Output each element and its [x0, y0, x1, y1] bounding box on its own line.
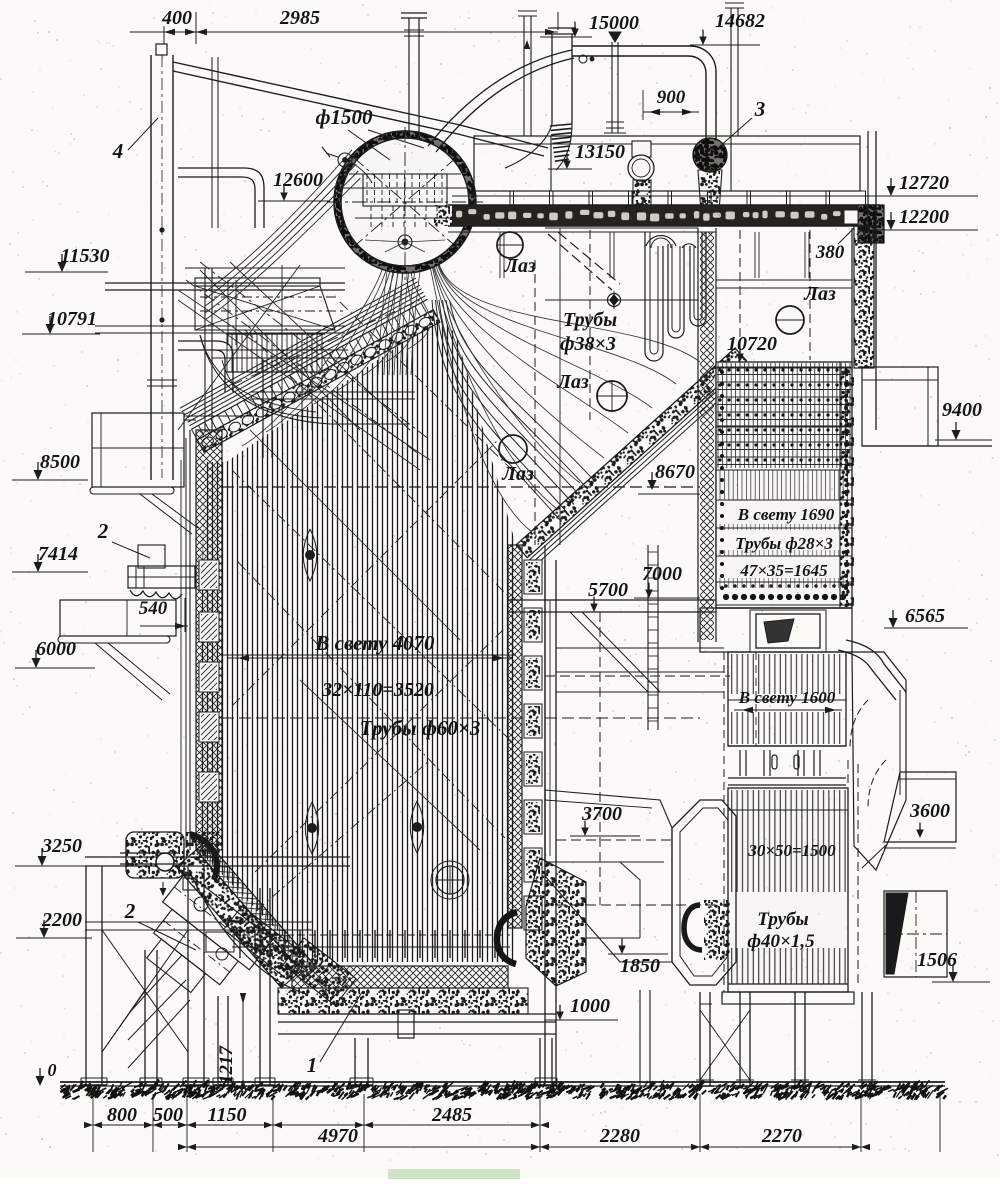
svg-text:1: 1 [307, 1053, 318, 1077]
svg-text:3600: 3600 [909, 800, 950, 822]
svg-text:2270: 2270 [761, 1125, 802, 1147]
svg-text:12600: 12600 [273, 169, 323, 191]
svg-text:13150: 13150 [575, 141, 625, 163]
svg-text:7000: 7000 [642, 563, 682, 585]
svg-text:В свету 1690: В свету 1690 [737, 505, 835, 524]
svg-text:2280: 2280 [599, 1125, 640, 1147]
svg-text:3: 3 [754, 97, 766, 121]
svg-text:10791: 10791 [47, 308, 97, 330]
svg-text:8670: 8670 [655, 461, 695, 483]
svg-text:1506: 1506 [917, 949, 957, 971]
svg-text:47×35=1645: 47×35=1645 [739, 561, 828, 580]
svg-text:12200: 12200 [899, 206, 949, 228]
svg-text:В свету 4070: В свету 4070 [314, 631, 435, 655]
svg-text:0: 0 [48, 1060, 57, 1080]
svg-text:4: 4 [112, 139, 124, 163]
svg-text:2: 2 [97, 519, 109, 543]
svg-text:ф1500: ф1500 [315, 105, 373, 129]
svg-text:Лаз: Лаз [803, 283, 836, 305]
svg-text:3250: 3250 [41, 835, 82, 857]
svg-text:ф40×1,5: ф40×1,5 [747, 931, 815, 952]
svg-text:ф38×3: ф38×3 [560, 333, 616, 355]
svg-text:540: 540 [139, 598, 168, 619]
svg-text:14682: 14682 [715, 10, 765, 32]
svg-text:500: 500 [153, 1104, 183, 1126]
svg-text:Лаз: Лаз [501, 463, 534, 485]
svg-text:4970: 4970 [317, 1125, 358, 1147]
svg-text:1850: 1850 [620, 955, 660, 977]
svg-text:3700: 3700 [581, 803, 622, 825]
svg-text:380: 380 [815, 242, 845, 263]
svg-text:2485: 2485 [431, 1104, 472, 1126]
svg-text:1150: 1150 [208, 1104, 247, 1126]
svg-text:1000: 1000 [570, 995, 610, 1017]
svg-text:Лаз: Лаз [556, 371, 589, 393]
svg-text:Трубы: Трубы [563, 309, 617, 331]
svg-text:15000: 15000 [589, 12, 639, 34]
svg-text:30×50=1500: 30×50=1500 [747, 841, 836, 860]
svg-text:Трубы ф28×3: Трубы ф28×3 [735, 534, 833, 553]
svg-text:900: 900 [657, 87, 686, 108]
svg-text:Лаз: Лаз [503, 255, 536, 277]
svg-text:2: 2 [124, 899, 136, 923]
svg-text:6000: 6000 [36, 638, 76, 660]
svg-text:32×110=3520: 32×110=3520 [321, 679, 434, 701]
svg-text:Трубы: Трубы [757, 909, 808, 930]
svg-text:11530: 11530 [61, 245, 110, 267]
svg-text:2200: 2200 [41, 909, 82, 931]
svg-text:1217: 1217 [216, 1045, 237, 1085]
svg-text:8500: 8500 [40, 451, 80, 473]
svg-text:7414: 7414 [38, 543, 78, 565]
svg-text:Трубы ф60×3: Трубы ф60×3 [360, 716, 481, 740]
svg-text:800: 800 [107, 1104, 137, 1126]
svg-text:400: 400 [161, 7, 192, 29]
svg-text:2985: 2985 [279, 7, 320, 29]
svg-text:10720: 10720 [727, 333, 777, 355]
svg-text:12720: 12720 [899, 172, 949, 194]
svg-text:5700: 5700 [588, 579, 628, 601]
svg-text:9400: 9400 [942, 399, 982, 421]
svg-text:6565: 6565 [905, 605, 945, 627]
svg-text:В свету 1600: В свету 1600 [738, 688, 836, 707]
